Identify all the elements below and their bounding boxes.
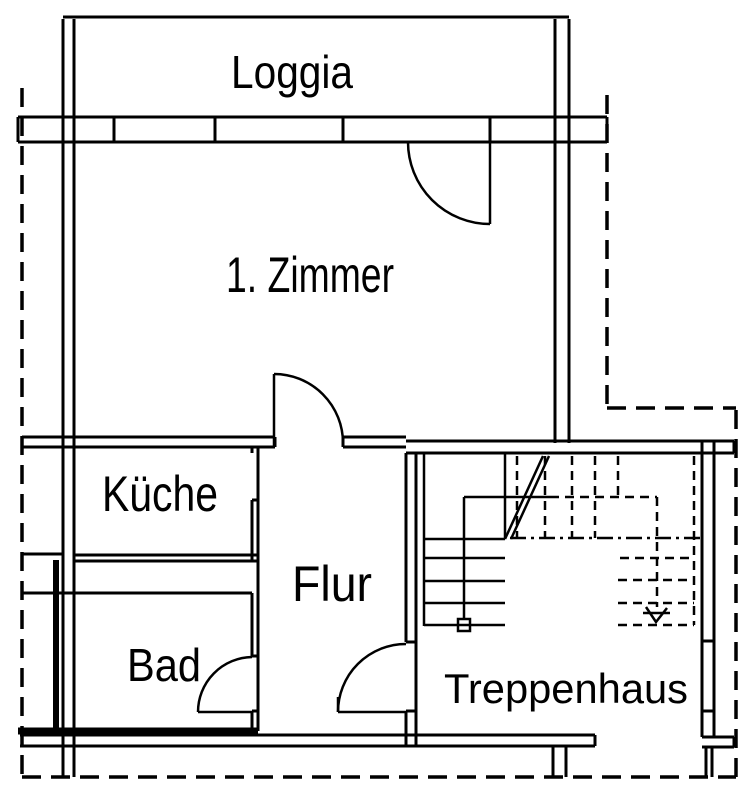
- floorplan-svg: Loggia 1. Zimmer Küche Flur Bad Treppenh…: [0, 0, 749, 800]
- zimmer-door-swing: [274, 374, 343, 443]
- bad-door-swing: [198, 657, 252, 712]
- room-label-bad: Bad: [127, 639, 201, 691]
- flur-door-swing: [338, 644, 406, 712]
- parapet-band: [18, 117, 607, 142]
- loggia-door-swing: [408, 142, 490, 224]
- doors: [198, 142, 490, 712]
- room-label-treppenhaus: Treppenhaus: [444, 665, 688, 712]
- floorplan-page: Loggia 1. Zimmer Küche Flur Bad Treppenh…: [0, 0, 749, 800]
- room-label-kueche: Küche: [102, 466, 218, 522]
- stair-down-arrow: [643, 607, 670, 622]
- room-labels: Loggia 1. Zimmer Küche Flur Bad Treppenh…: [102, 46, 688, 712]
- room-label-zimmer: 1. Zimmer: [226, 247, 394, 303]
- room-label-loggia: Loggia: [231, 46, 353, 98]
- room-label-flur: Flur: [292, 556, 372, 612]
- staircase-solid: [424, 453, 550, 631]
